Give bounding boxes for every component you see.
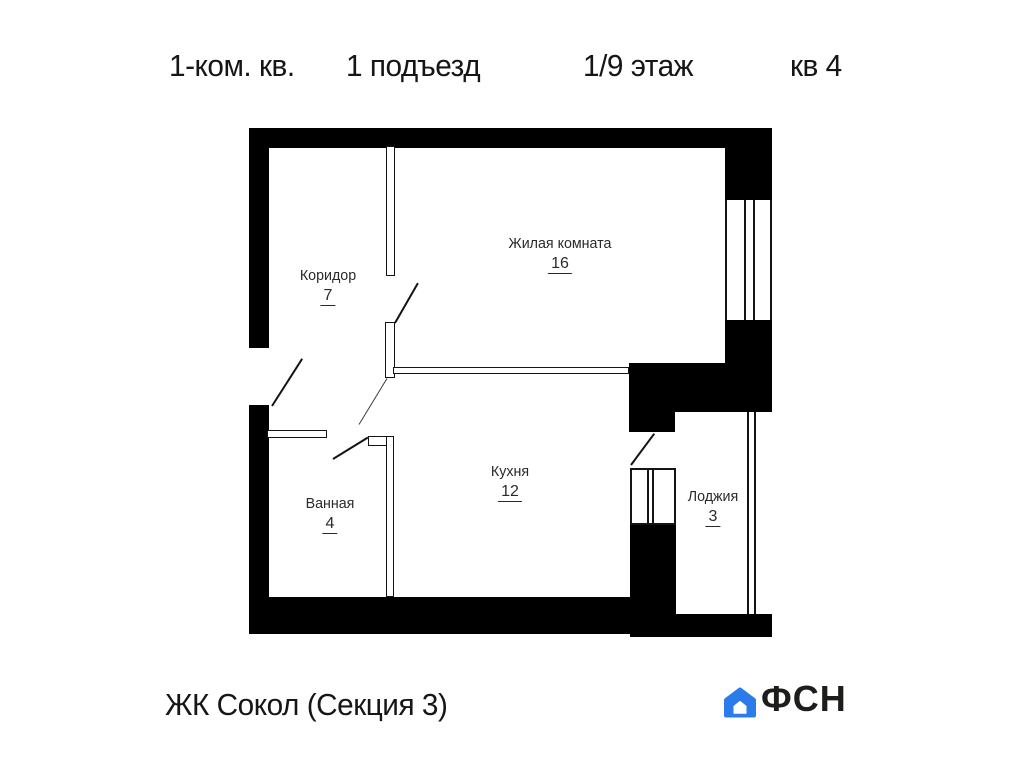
- floor-label: 1/9 этаж: [583, 50, 693, 81]
- wall-bottom-loggia: [676, 614, 772, 637]
- room-kitchen-name: Кухня: [491, 464, 529, 480]
- fsn-logo: ФСН: [723, 681, 847, 718]
- bathroom-door: [332, 437, 368, 460]
- apartment-number-label: кв 4: [790, 50, 842, 81]
- kitchen-window: [630, 468, 676, 525]
- room-loggia-area: 3: [686, 508, 739, 527]
- wall-left-upper: [249, 128, 269, 348]
- complex-name: ЖК Сокол (Секция 3): [165, 689, 447, 720]
- room-kitchen: Кухня 12: [490, 464, 530, 502]
- loggia-glazing-wall: [747, 412, 756, 614]
- apartment-type-label: 1-ком. кв.: [169, 50, 295, 81]
- wall-bathroom-top: [267, 430, 327, 438]
- room-kitchen-area: 12: [490, 483, 530, 502]
- floorplan-page: 1-ком. кв. 1 подъезд 1/9 этаж кв 4: [0, 0, 1024, 768]
- logo-text: ФСН: [761, 681, 847, 717]
- house-icon: [723, 687, 757, 718]
- room-loggia: Лоджия 3: [686, 489, 739, 527]
- room-loggia-name: Лоджия: [688, 489, 738, 505]
- room-bathroom: Ванная 4: [304, 496, 355, 534]
- wall-bottom-main: [249, 597, 676, 634]
- wall-bathroom-right: [386, 436, 394, 597]
- wall-right-top: [725, 128, 772, 200]
- balcony-door: [630, 433, 655, 466]
- room-living-name: Жилая комната: [509, 236, 612, 252]
- living-room-window: [725, 200, 772, 320]
- room-corridor-name: Коридор: [300, 268, 356, 284]
- kitchen-door: [359, 378, 388, 425]
- room-living-area: 16: [506, 255, 614, 274]
- room-corridor: Коридор 7: [298, 268, 357, 306]
- room-living: Жилая комната 16: [506, 236, 614, 274]
- living-room-door: [394, 283, 419, 324]
- wall-top: [249, 128, 772, 148]
- wall-balcony-pier: [629, 363, 675, 432]
- room-bathroom-name: Ванная: [306, 496, 355, 512]
- entrance-label: 1 подъезд: [346, 50, 480, 81]
- wall-corridor-living-divider: [386, 146, 395, 276]
- entrance-door: [271, 358, 303, 406]
- room-bathroom-area: 4: [304, 515, 355, 534]
- wall-living-kitchen-divider: [393, 367, 629, 374]
- room-corridor-area: 7: [298, 287, 357, 306]
